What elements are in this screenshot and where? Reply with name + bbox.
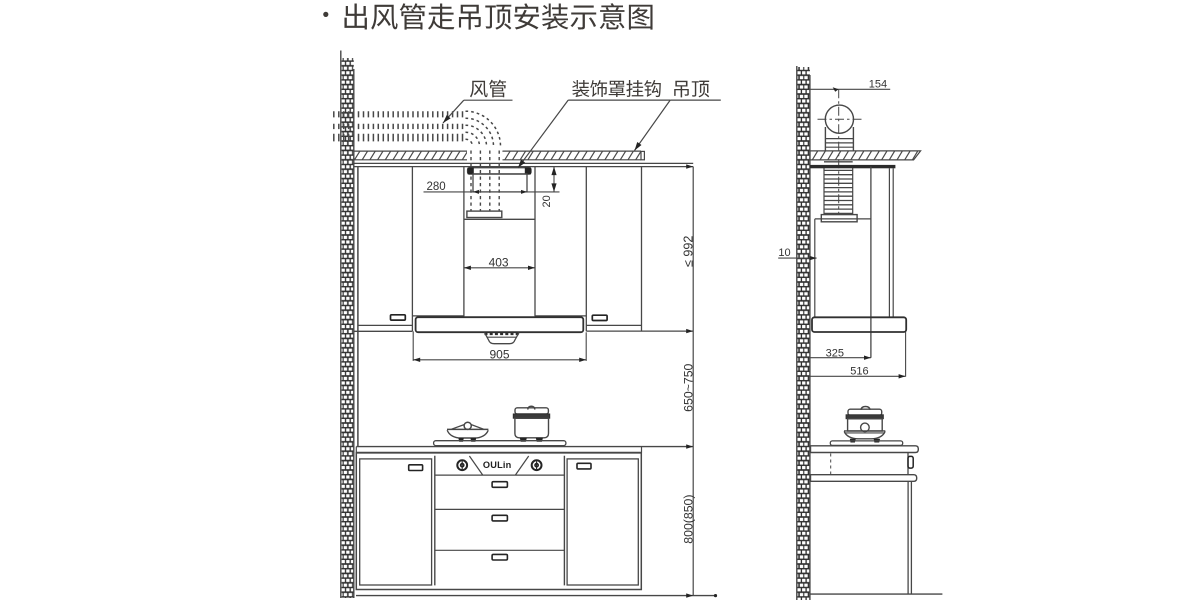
svg-text:905: 905 [489,348,509,362]
svg-text:650~750: 650~750 [682,363,696,411]
svg-text:10: 10 [778,247,790,259]
svg-text:280: 280 [427,181,446,193]
svg-text:325: 325 [826,347,844,359]
svg-text:403: 403 [489,255,509,269]
svg-text:516: 516 [850,366,868,378]
svg-text:20: 20 [541,195,553,207]
svg-text:800(850): 800(850) [682,494,696,543]
svg-text:154: 154 [869,78,887,90]
svg-text:OULin: OULin [483,460,512,470]
svg-text:≤ 992: ≤ 992 [682,236,696,267]
